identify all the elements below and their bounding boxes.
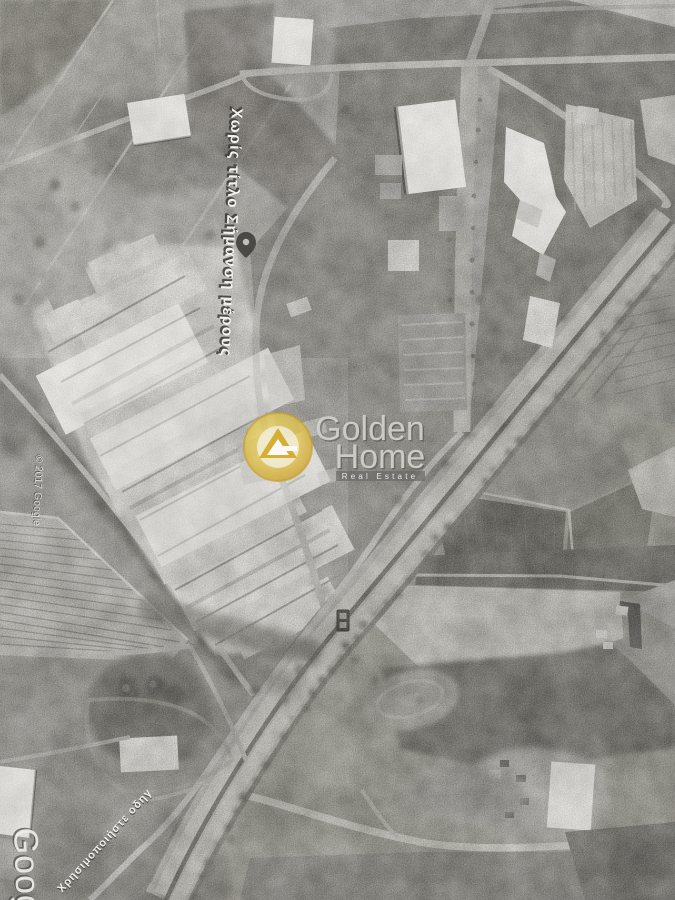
svg-text:Google: Google [6,827,48,900]
svg-text:Real Estate: Real Estate [342,472,419,481]
svg-text:© 2017 Google: © 2017 Google [31,455,45,526]
svg-text:Home: Home [335,438,426,476]
